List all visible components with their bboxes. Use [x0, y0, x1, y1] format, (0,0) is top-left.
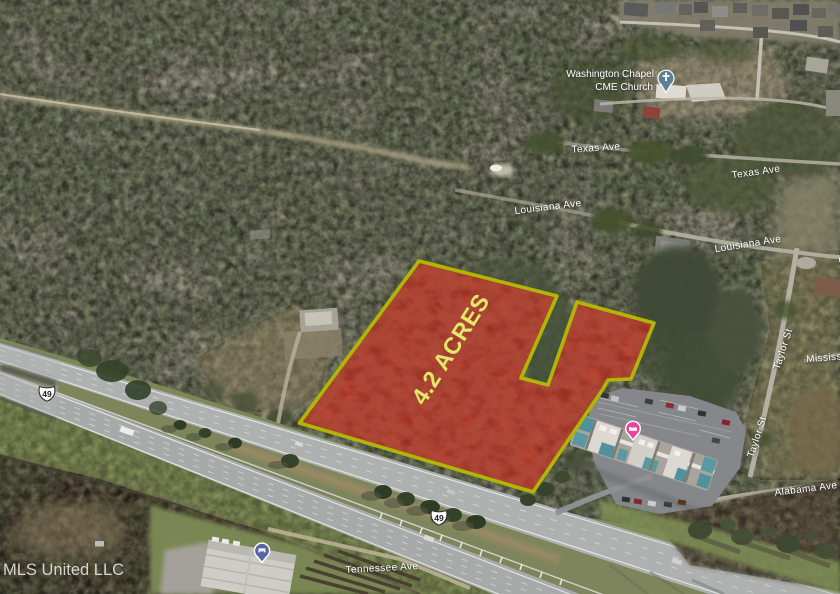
svg-text:MLS United LLC: MLS United LLC: [3, 561, 124, 579]
svg-text:Washington Chapel: Washington Chapel: [566, 69, 654, 80]
svg-text:49: 49: [434, 513, 444, 523]
svg-text:49: 49: [42, 389, 52, 399]
svg-text:CME Church: CME Church: [595, 82, 653, 93]
